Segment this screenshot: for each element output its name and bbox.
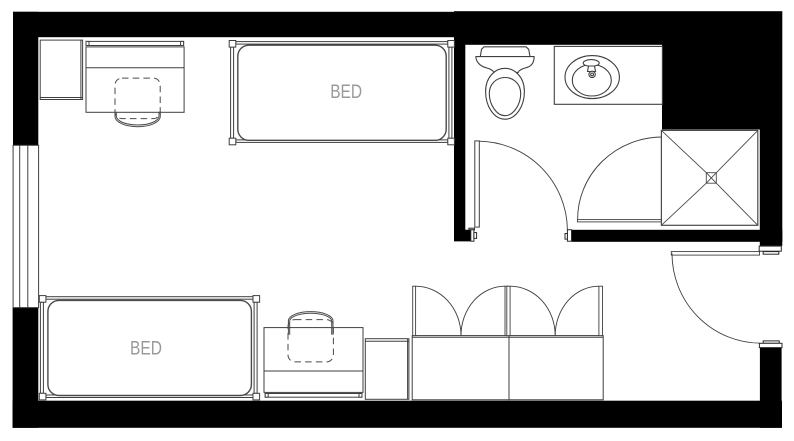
svg-text:BED: BED bbox=[330, 82, 362, 103]
svg-text:BED: BED bbox=[130, 339, 162, 360]
